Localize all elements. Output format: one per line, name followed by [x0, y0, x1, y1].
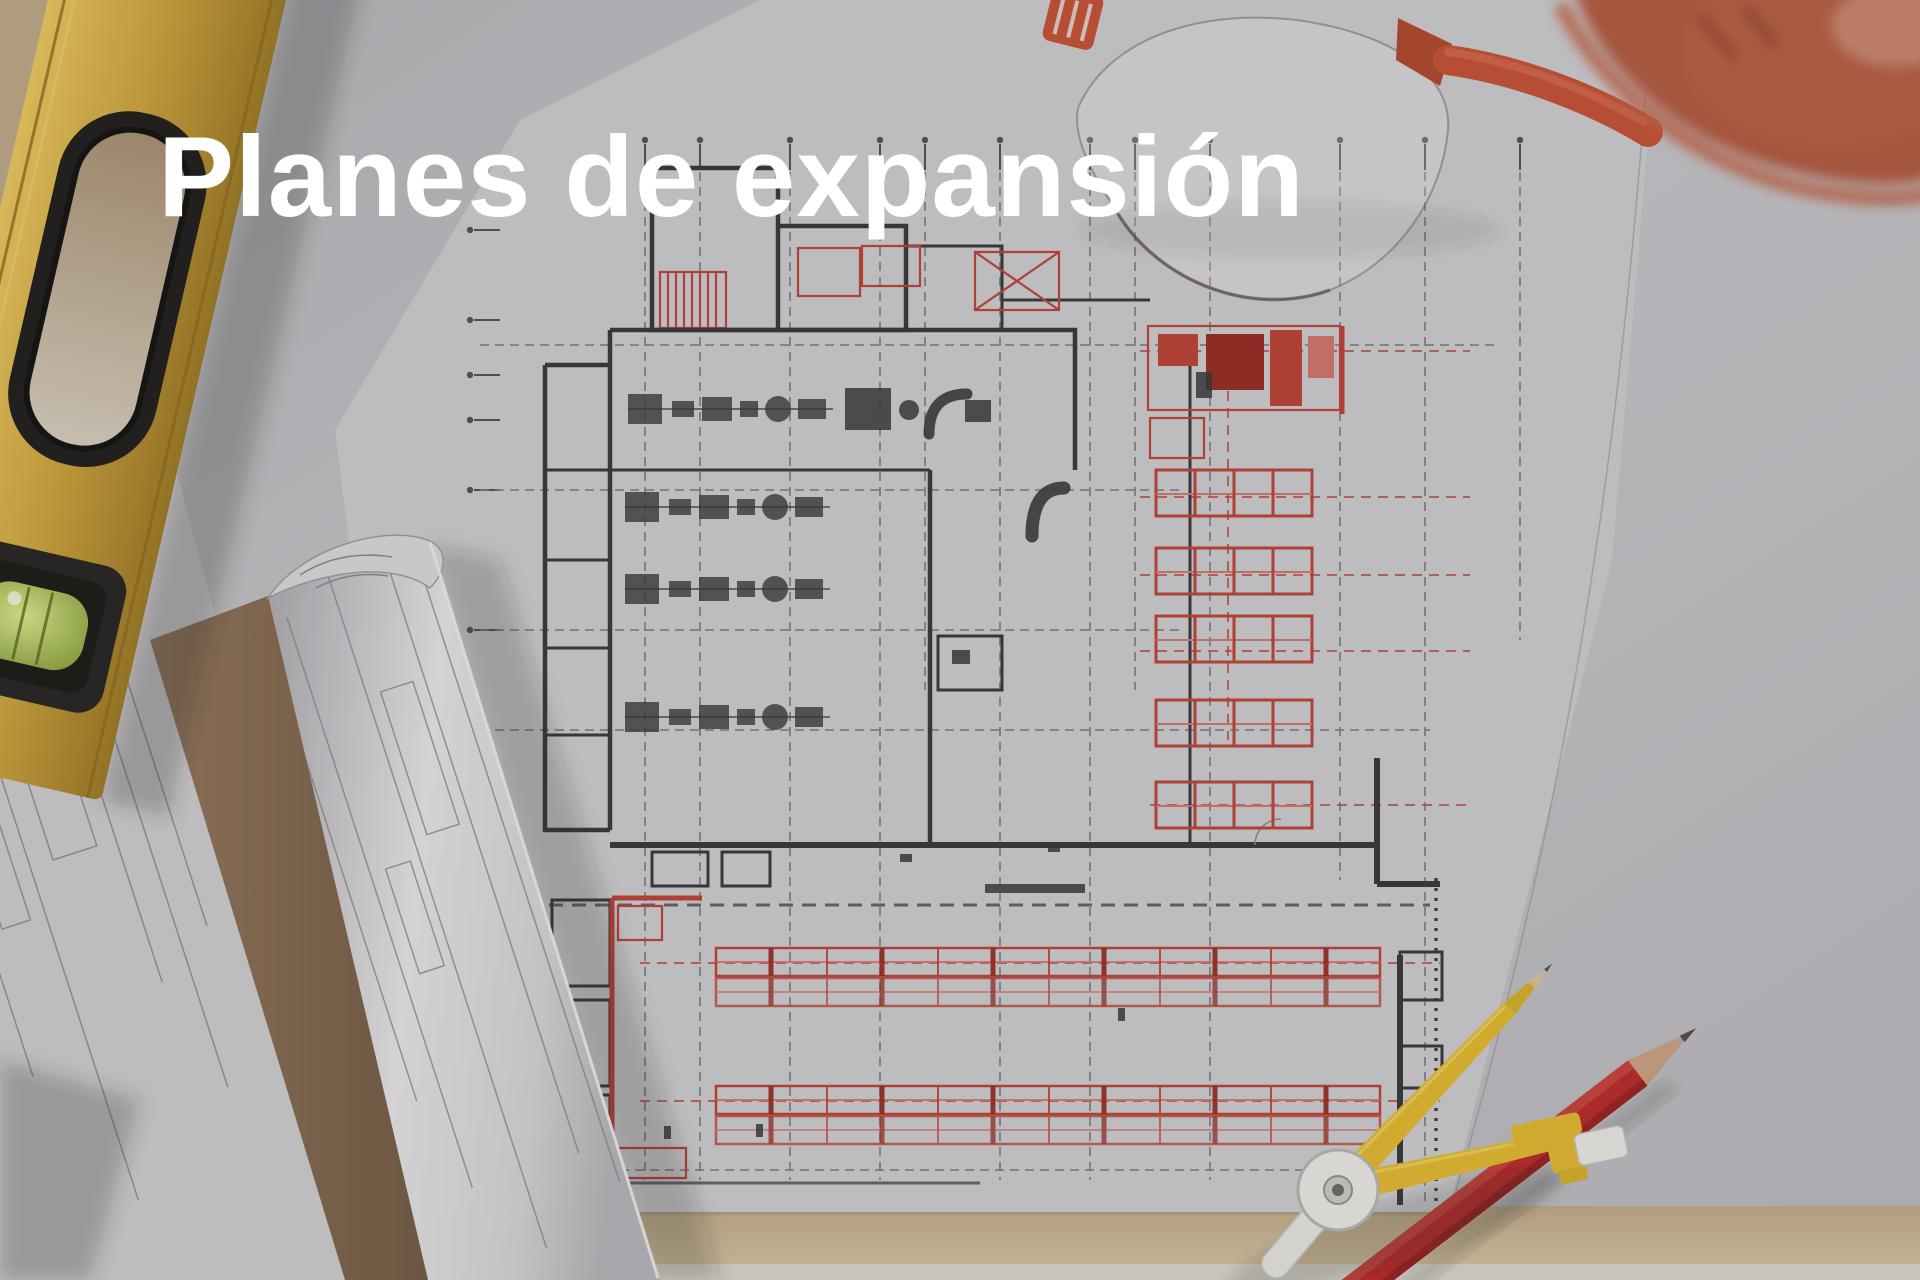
- page-title: Planes de expansión: [158, 112, 1305, 243]
- hero-section: Planes de expansión: [0, 0, 1920, 1280]
